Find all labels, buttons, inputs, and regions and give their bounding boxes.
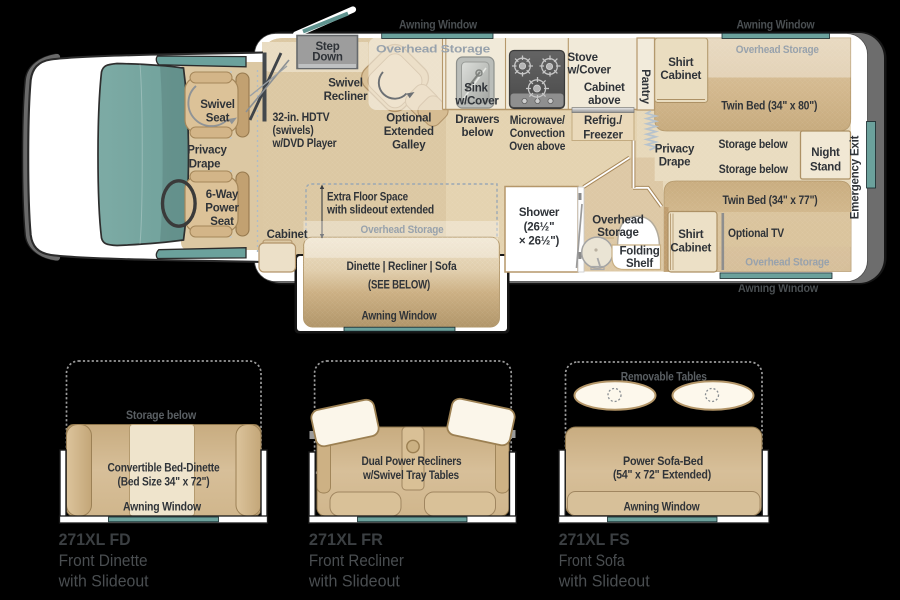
svg-text:with Slideout: with Slideout [308,572,400,591]
svg-text:Twin Bed (34" x 80"): Twin Bed (34" x 80") [721,101,817,113]
svg-text:Awning Window: Awning Window [624,502,700,514]
svg-text:Awning Window: Awning Window [399,20,477,32]
svg-text:(swivels): (swivels) [273,125,314,137]
svg-text:with slideout extended: with slideout extended [326,205,434,217]
svg-text:Seat: Seat [206,113,230,125]
svg-text:Storage below: Storage below [126,410,196,422]
svg-text:Down: Down [312,52,343,64]
svg-text:Cabinet: Cabinet [670,243,711,255]
svg-text:Front Sofa: Front Sofa [559,551,625,570]
svg-text:Folding: Folding [619,246,659,258]
svg-text:Stove: Stove [568,52,598,64]
svg-text:271XL FS: 271XL FS [559,530,630,549]
svg-text:Refrig./: Refrig./ [584,115,623,127]
svg-text:Power Sofa-Bed: Power Sofa-Bed [623,456,703,468]
svg-text:Swivel: Swivel [200,99,235,111]
svg-text:Cabinet: Cabinet [584,82,625,94]
svg-text:w/Cover: w/Cover [454,96,499,108]
svg-text:Shelf: Shelf [626,258,653,270]
svg-text:Oven above: Oven above [509,141,565,153]
svg-text:Privacy: Privacy [655,144,695,156]
svg-text:Drape: Drape [189,159,221,171]
svg-text:Twin Bed (34" x 77"): Twin Bed (34" x 77") [723,195,818,207]
svg-text:Optional: Optional [386,113,431,125]
svg-text:Recliner: Recliner [324,91,369,103]
svg-text:271XL FR: 271XL FR [309,530,383,549]
svg-text:w/Swivel Tray Tables: w/Swivel Tray Tables [362,470,459,482]
svg-text:Overhead: Overhead [592,215,644,227]
svg-text:271XL FD: 271XL FD [59,530,131,549]
svg-text:6-Way: 6-Way [206,189,239,201]
svg-text:Galley: Galley [392,140,426,152]
svg-text:Cabinet: Cabinet [267,229,308,241]
svg-text:Night: Night [811,147,840,159]
svg-text:Drape: Drape [659,157,691,169]
svg-text:Freezer: Freezer [583,130,623,142]
svg-text:w/Cover: w/Cover [567,65,612,77]
svg-text:Dual Power Recliners: Dual Power Recliners [362,456,462,468]
svg-text:Overhead Storage: Overhead Storage [745,257,829,269]
svg-text:Microwave/: Microwave/ [510,115,566,127]
svg-text:Convertible Bed-Dinette: Convertible Bed-Dinette [108,463,220,475]
svg-text:Dinette | Recliner | Sofa: Dinette | Recliner | Sofa [347,261,458,273]
svg-text:with Slideout: with Slideout [58,572,149,591]
svg-text:Overhead Storage: Overhead Storage [376,44,490,56]
svg-text:Shirt: Shirt [668,57,694,69]
svg-text:Emergency Exit: Emergency Exit [850,135,862,219]
svg-text:Removable Tables: Removable Tables [621,372,707,384]
svg-text:Drawers: Drawers [455,114,499,126]
svg-text:Shirt: Shirt [678,229,704,241]
svg-text:Stand: Stand [810,162,841,174]
svg-text:Sink: Sink [464,83,488,95]
svg-text:Storage: Storage [597,227,638,239]
svg-text:(Bed Size 34" x 72"): (Bed Size 34" x 72") [118,477,210,489]
svg-text:below: below [462,127,494,139]
svg-text:Front Recliner: Front Recliner [309,551,404,570]
svg-text:Swivel: Swivel [328,78,363,90]
svg-text:(54" x 72" Extended): (54" x 72" Extended) [613,470,711,482]
svg-text:Cabinet: Cabinet [660,70,701,82]
svg-text:above: above [588,95,620,107]
svg-text:Shower: Shower [519,207,560,219]
svg-text:Awning Window: Awning Window [362,311,437,323]
svg-text:Front Dinette: Front Dinette [59,551,148,570]
svg-text:× 26½"): × 26½") [519,236,560,248]
svg-text:with Slideout: with Slideout [558,572,650,591]
svg-text:(SEE BELOW): (SEE BELOW) [368,280,430,292]
svg-text:Seat: Seat [210,216,234,228]
svg-text:Optional TV: Optional TV [728,228,784,240]
svg-text:Pantry: Pantry [639,69,651,104]
svg-text:Power: Power [205,203,239,215]
svg-text:(26½": (26½" [524,222,555,234]
svg-text:Privacy: Privacy [187,145,227,157]
svg-text:Convection: Convection [510,128,565,140]
svg-text:Overhead Storage: Overhead Storage [736,44,819,56]
svg-text:Awning Window: Awning Window [738,283,818,295]
svg-text:Storage below: Storage below [719,139,788,151]
svg-text:32-in. HDTV: 32-in. HDTV [273,112,330,124]
svg-text:Extended: Extended [384,126,434,138]
svg-text:Awning Window: Awning Window [737,20,815,32]
svg-text:w/DVD Player: w/DVD Player [272,138,338,150]
svg-text:Extra Floor Space: Extra Floor Space [327,191,408,203]
svg-text:Storage below: Storage below [719,164,788,176]
svg-text:Awning Window: Awning Window [123,502,201,514]
svg-text:Overhead Storage: Overhead Storage [361,224,444,236]
